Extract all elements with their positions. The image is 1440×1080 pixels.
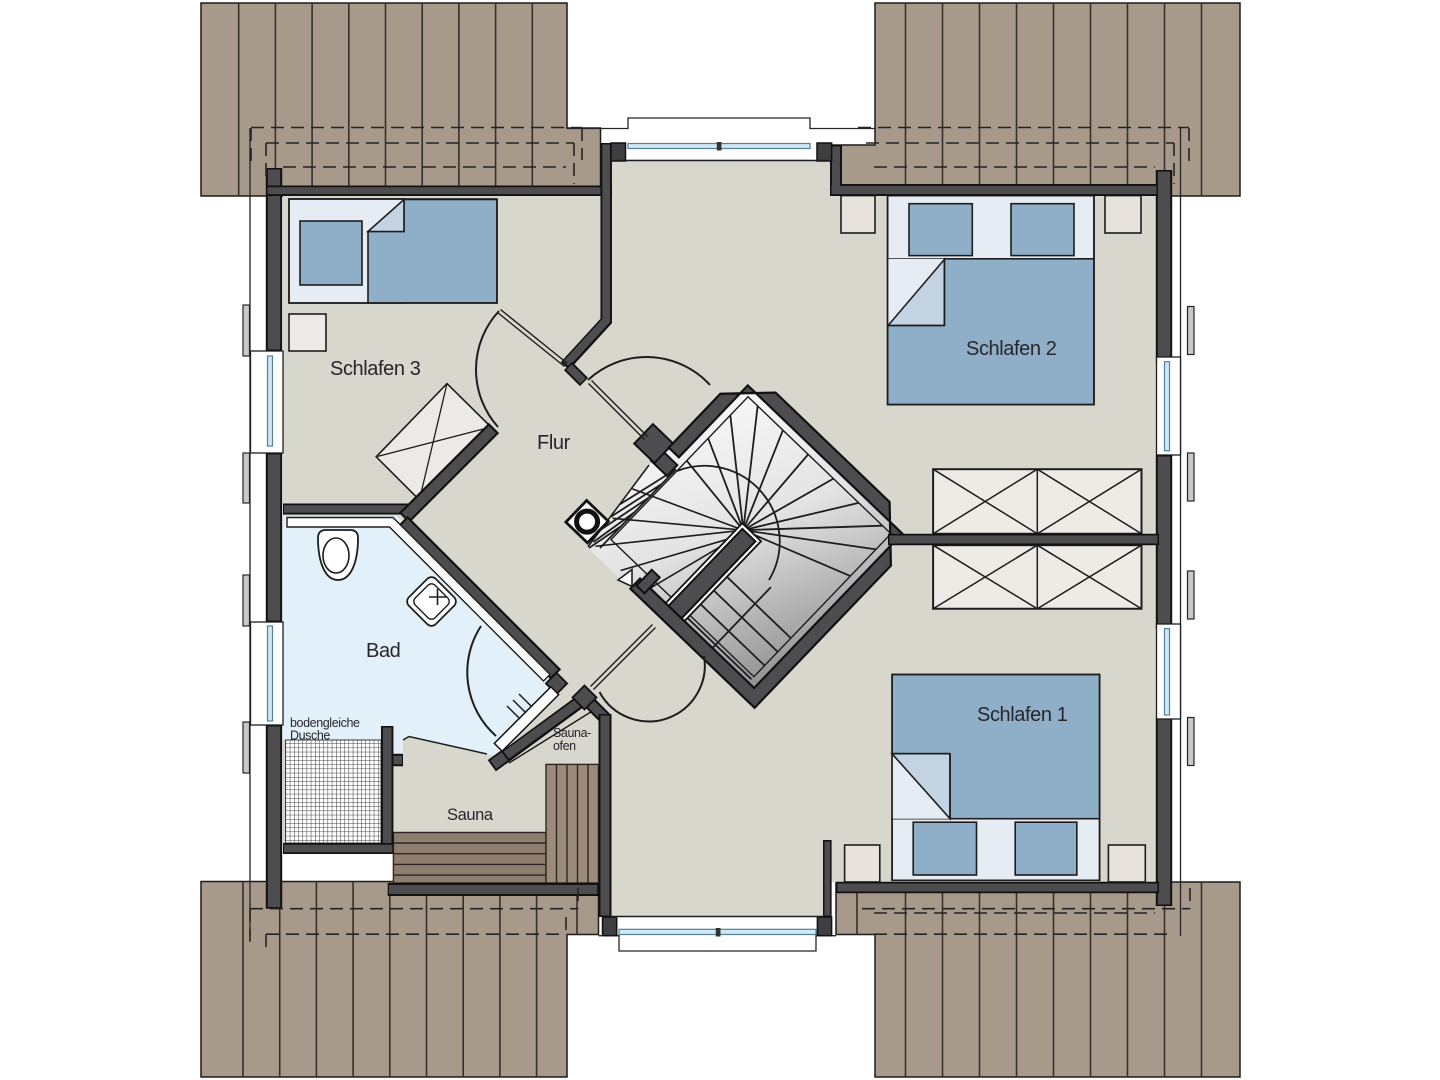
svg-text:Sauna: Sauna <box>447 806 494 824</box>
svg-text:ofen: ofen <box>553 739 576 753</box>
svg-text:Schlafen 2: Schlafen 2 <box>966 338 1057 360</box>
svg-text:Dusche: Dusche <box>290 729 330 743</box>
svg-text:Schlafen 1: Schlafen 1 <box>977 704 1068 726</box>
svg-text:Schlafen 3: Schlafen 3 <box>330 358 421 380</box>
svg-text:Bad: Bad <box>366 640 400 662</box>
svg-text:Sauna-: Sauna- <box>553 726 591 740</box>
svg-text:Flur: Flur <box>537 432 571 454</box>
